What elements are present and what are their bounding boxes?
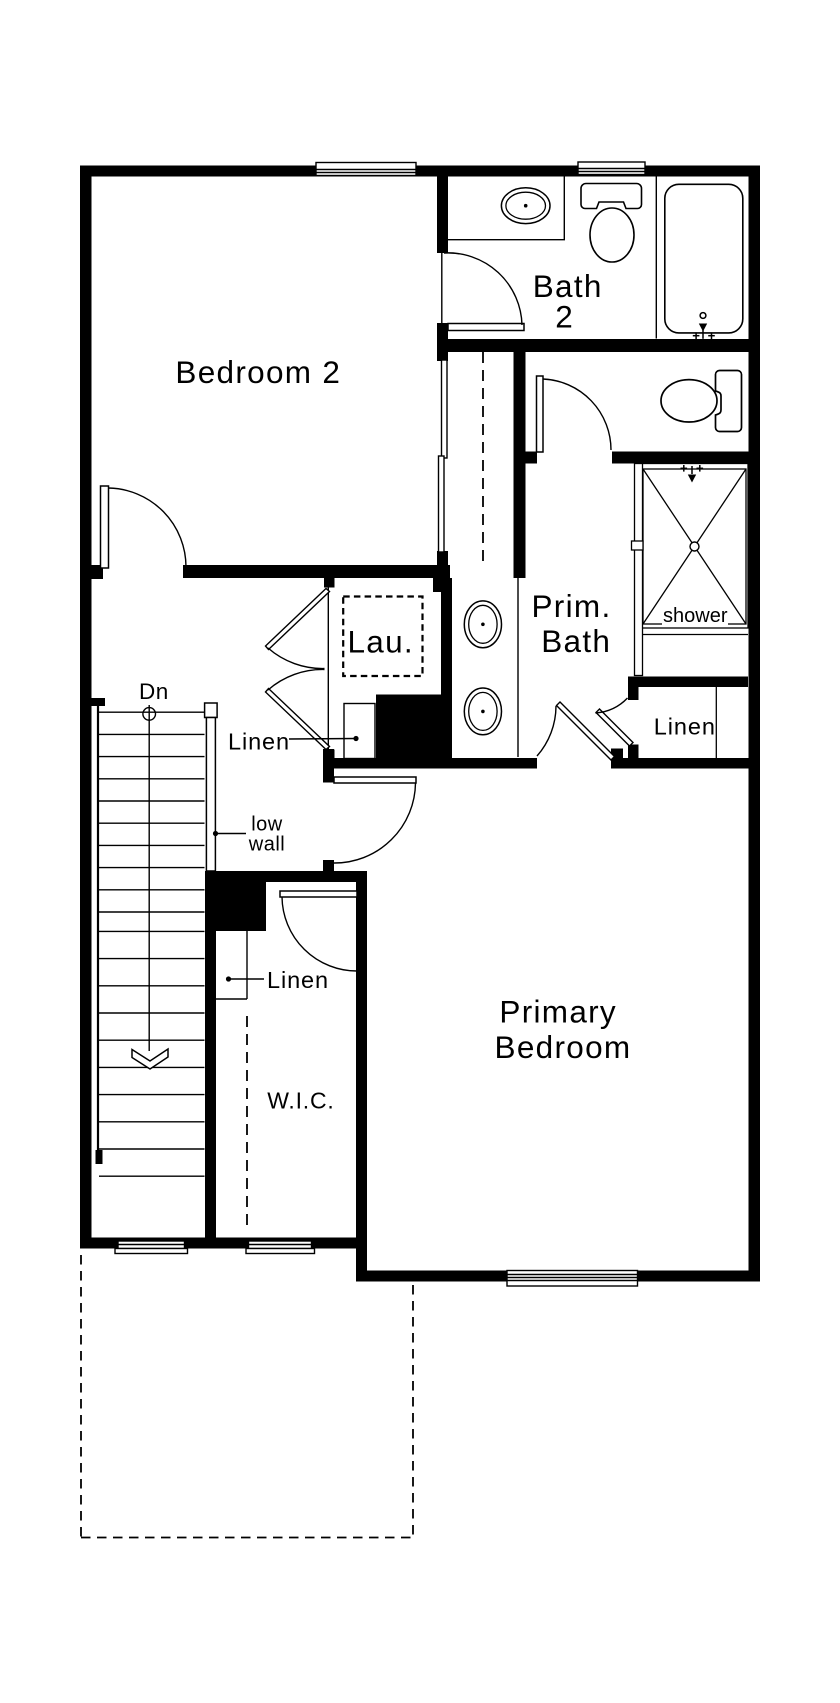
- svg-text:Linen: Linen: [228, 728, 290, 754]
- svg-text:Dn: Dn: [139, 679, 169, 704]
- svg-text:Bedroom 2: Bedroom 2: [175, 354, 341, 390]
- svg-text:2: 2: [555, 299, 574, 335]
- svg-text:Bedroom: Bedroom: [495, 1029, 632, 1065]
- svg-text:Linen: Linen: [267, 967, 329, 993]
- svg-text:Bath: Bath: [541, 623, 611, 659]
- svg-text:Lau.: Lau.: [347, 624, 414, 660]
- svg-text:Primary: Primary: [499, 993, 617, 1029]
- svg-text:wall: wall: [248, 833, 285, 855]
- svg-text:W.I.C.: W.I.C.: [267, 1088, 334, 1114]
- svg-text:low: low: [251, 814, 283, 836]
- svg-text:Linen: Linen: [654, 714, 716, 740]
- svg-text:Prim.: Prim.: [532, 588, 612, 624]
- svg-text:shower: shower: [663, 605, 728, 627]
